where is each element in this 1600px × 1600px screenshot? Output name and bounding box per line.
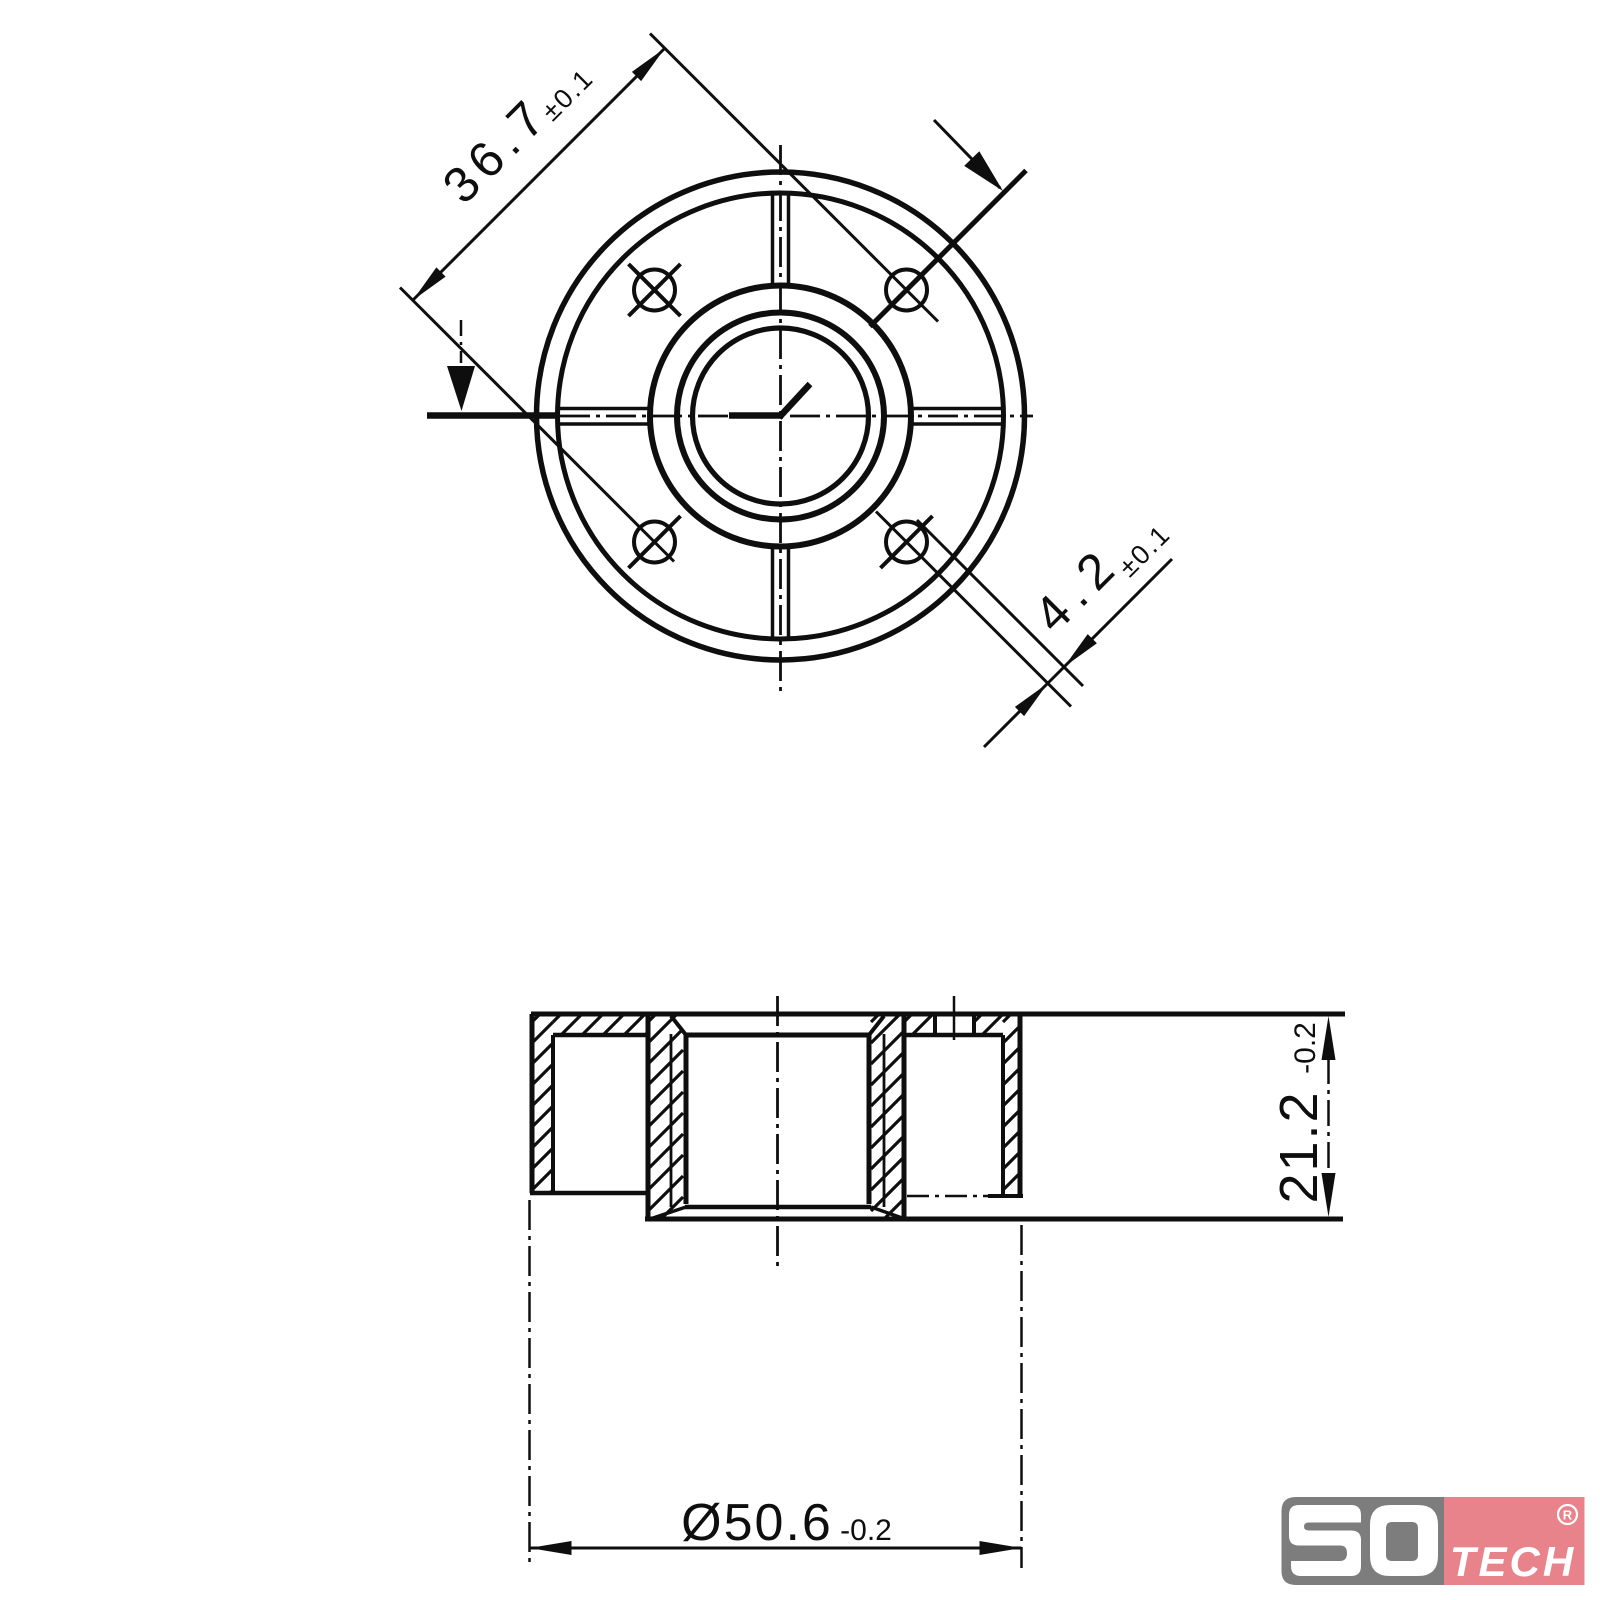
svg-text:Ø50.6: Ø50.6 [681, 1494, 833, 1552]
svg-text:TECH: TECH [1450, 1538, 1576, 1585]
svg-text:-0.2: -0.2 [1289, 1022, 1322, 1074]
svg-text:21.2: 21.2 [1269, 1090, 1329, 1203]
svg-text:-0.2: -0.2 [840, 1514, 892, 1547]
svg-text:R: R [1563, 1508, 1573, 1523]
